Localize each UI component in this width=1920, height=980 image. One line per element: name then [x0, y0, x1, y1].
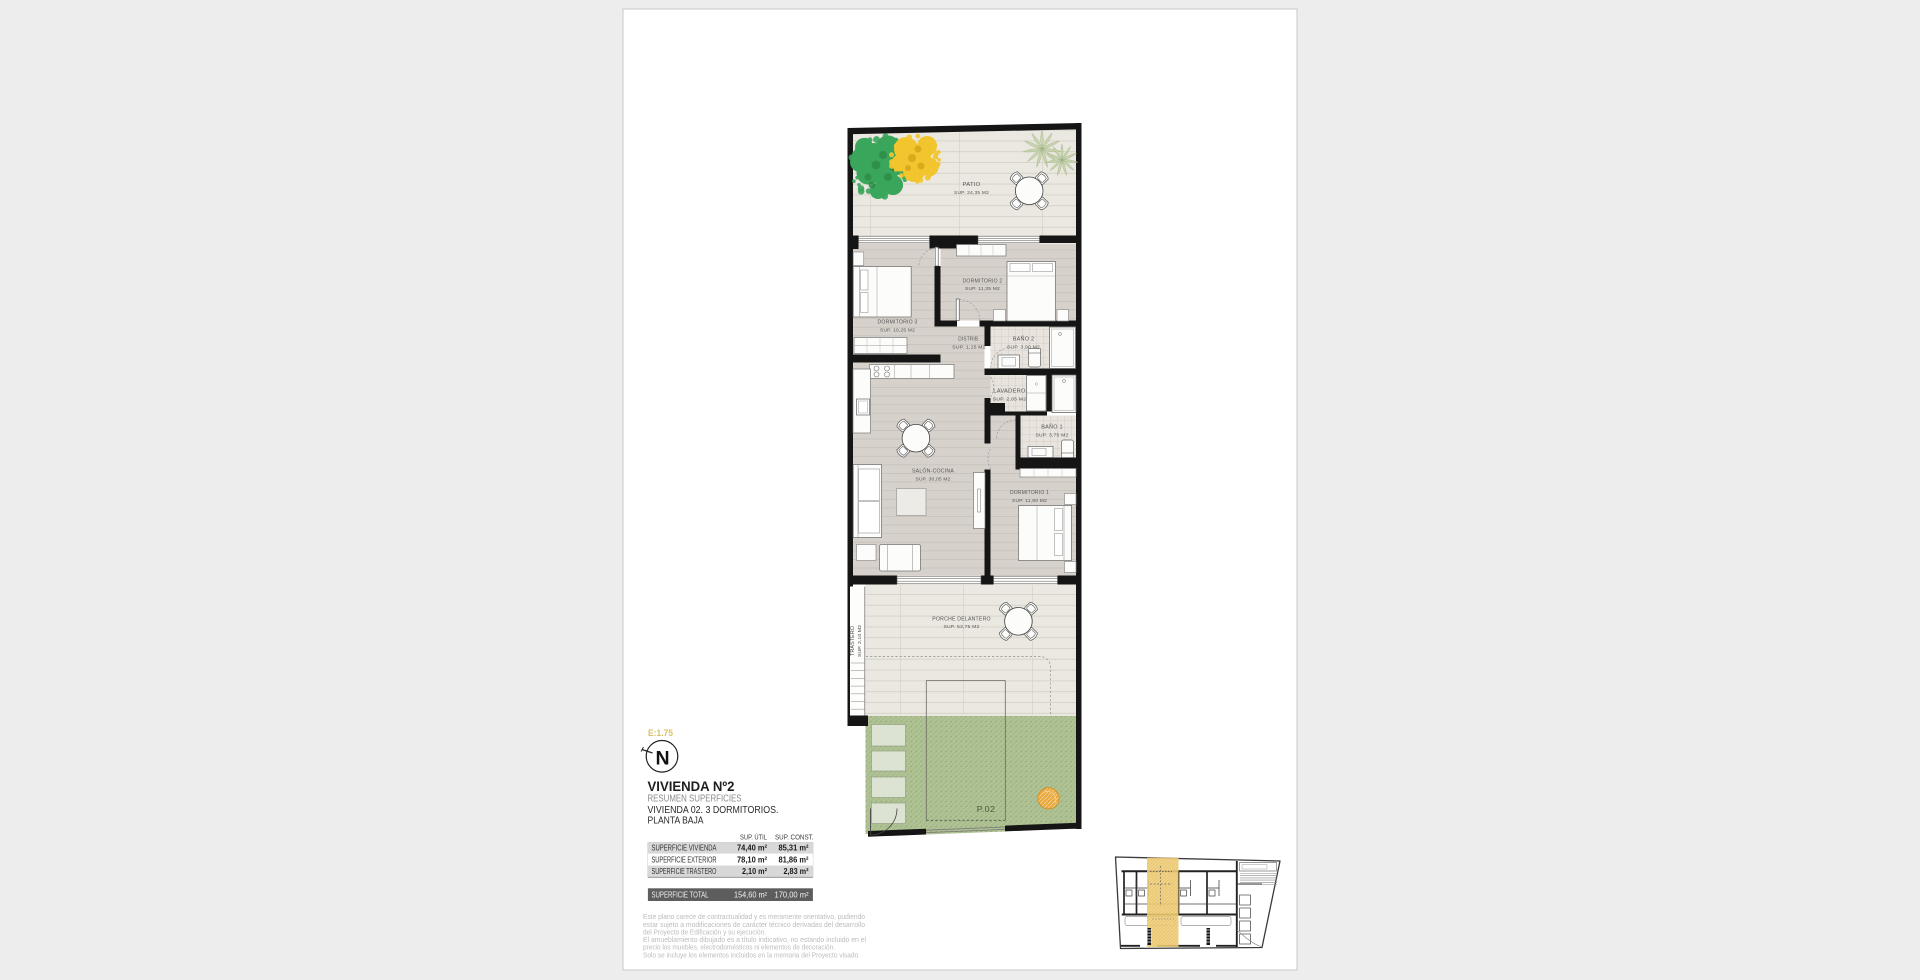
svg-text:SUPERFICIE VIVIENDA: SUPERFICIE VIVIENDA: [652, 844, 717, 853]
svg-text:RESUMEN SUPERFICIES: RESUMEN SUPERFICIES: [648, 794, 742, 805]
svg-text:PORCHE DELANTERO: PORCHE DELANTERO: [932, 616, 991, 622]
svg-text:N: N: [655, 747, 669, 769]
svg-text:VIVIENDA 02. 3 DORMITORIOS.: VIVIENDA 02. 3 DORMITORIOS.: [648, 805, 779, 816]
svg-text:SUP. 30,05 M2: SUP. 30,05 M2: [916, 476, 951, 482]
svg-text:SALÓN-COCINA: SALÓN-COCINA: [912, 468, 954, 475]
svg-text:SUP. 11,35 M2: SUP. 11,35 M2: [965, 286, 1000, 292]
svg-text:SUPERFICIE TRASTERO: SUPERFICIE TRASTERO: [652, 867, 717, 876]
svg-text:SUP. 1,15 M2: SUP. 1,15 M2: [952, 344, 986, 350]
svg-text:SUPERFICIE EXTERIOR: SUPERFICIE EXTERIOR: [652, 855, 717, 864]
svg-text:LAVADERO: LAVADERO: [993, 389, 1026, 395]
svg-text:SUP. 24,35 M2: SUP. 24,35 M2: [954, 190, 989, 196]
svg-text:2,83 m²: 2,83 m²: [784, 867, 809, 876]
svg-text:SUP. 3,75 M2: SUP. 3,75 M2: [1036, 433, 1069, 439]
svg-text:170,00 m²: 170,00 m²: [775, 891, 809, 900]
svg-text:VIVIENDA Nº2: VIVIENDA Nº2: [648, 778, 735, 794]
svg-text:78,10 m²: 78,10 m²: [737, 855, 767, 864]
svg-text:SUP. 3,90 M2: SUP. 3,90 M2: [1007, 344, 1040, 350]
svg-text:BAÑO 2: BAÑO 2: [1013, 336, 1035, 343]
svg-text:2,10 m²: 2,10 m²: [742, 867, 767, 876]
svg-text:P.02: P.02: [977, 804, 996, 814]
svg-text:SUPERFICIE TOTAL: SUPERFICIE TOTAL: [652, 891, 709, 900]
svg-text:PATIO: PATIO: [963, 182, 981, 188]
svg-text:TRASTERO: TRASTERO: [850, 626, 856, 656]
svg-text:SUP. 2,05 M2: SUP. 2,05 M2: [993, 397, 1027, 403]
svg-text:DORMITORIO 1: DORMITORIO 1: [1010, 490, 1049, 496]
svg-text:SUP. 2,10 M2: SUP. 2,10 M2: [857, 625, 863, 657]
svg-text:81,86 m²: 81,86 m²: [779, 855, 809, 864]
svg-text:DISTRIB.: DISTRIB.: [958, 337, 980, 343]
svg-text:85,31 m²: 85,31 m²: [779, 844, 809, 853]
svg-text:DORMITORIO 3: DORMITORIO 3: [878, 320, 918, 326]
svg-text:154,60 m²: 154,60 m²: [734, 891, 767, 900]
svg-text:SUP. ÚTIL: SUP. ÚTIL: [740, 832, 767, 841]
svg-text:E:1.75: E:1.75: [648, 728, 673, 738]
svg-text:BAÑO 1: BAÑO 1: [1041, 424, 1063, 431]
svg-text:SUP. CONST.: SUP. CONST.: [775, 832, 814, 841]
svg-text:SUP. 10,25 M2: SUP. 10,25 M2: [880, 327, 915, 333]
svg-text:74,40 m²: 74,40 m²: [737, 844, 767, 853]
svg-text:PLANTA BAJA: PLANTA BAJA: [648, 816, 704, 827]
svg-text:DORMITORIO 2: DORMITORIO 2: [963, 278, 1003, 284]
svg-text:Solo se incluye los elementos: Solo se incluye los elementos incluidos …: [643, 950, 860, 959]
svg-text:SUP. 53,75 M2: SUP. 53,75 M2: [944, 624, 980, 630]
svg-text:SUP. 11,90 M2: SUP. 11,90 M2: [1012, 498, 1047, 504]
